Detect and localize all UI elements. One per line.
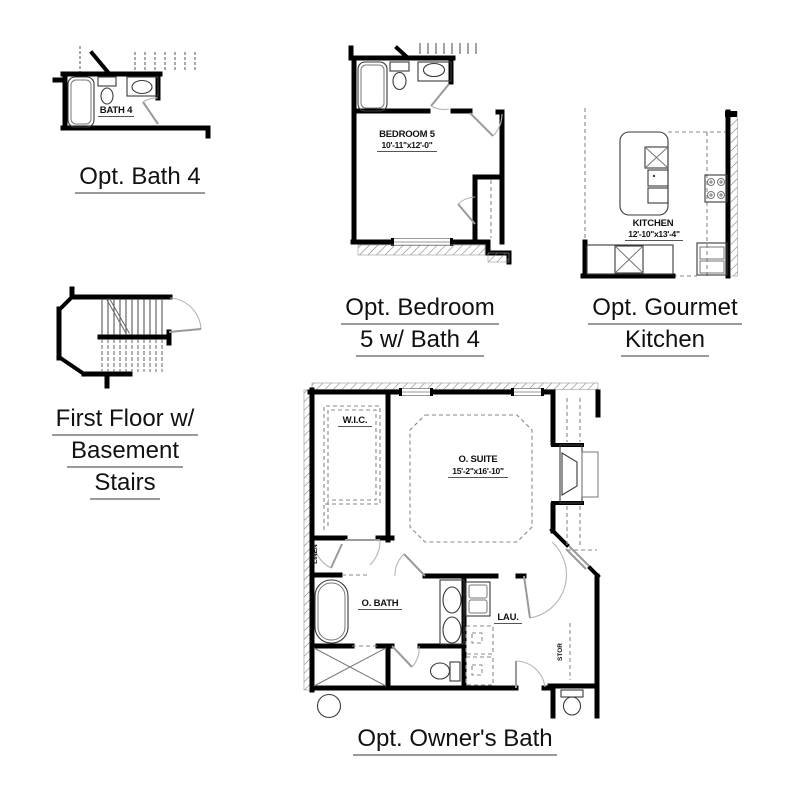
wic-label: W.I.C.	[343, 415, 368, 426]
storage-label: STOR	[557, 643, 564, 661]
washer-dryer	[466, 626, 493, 685]
exterior-hatch	[731, 112, 738, 276]
stairs-drawing	[50, 285, 205, 390]
bath4-drawing: BATH 4	[45, 40, 220, 145]
tray-ceiling	[410, 415, 532, 542]
bedroom5-room-dims: 10'-11"x12'-0"	[382, 140, 433, 150]
title-basement-stairs: First Floor w/ Basement Stairs	[35, 404, 215, 500]
title-text: Opt. Owner's Bath	[353, 724, 556, 756]
stair-ticks	[420, 43, 476, 54]
owners-bath-drawing: W.I.C. O. SUITE 15'-2"x16'-10" LINEN O. …	[300, 380, 605, 720]
title-text-line3: Stairs	[90, 468, 159, 500]
base-counter	[587, 245, 673, 274]
window-2	[511, 388, 544, 396]
toilet	[390, 62, 409, 90]
walls	[351, 48, 509, 262]
wic-door	[345, 540, 380, 565]
kitchen-room-dims: 12'-10"x13'-4"	[628, 229, 680, 239]
fireplace	[560, 445, 598, 503]
island	[620, 132, 668, 215]
floorplan-sheet: BATH 4 Opt. Bath 4	[0, 0, 800, 800]
laundry-sink	[466, 582, 490, 616]
title-opt-owners-bath: Opt. Owner's Bath	[330, 724, 580, 756]
bath-door	[431, 84, 449, 109]
stair-treads-upper	[102, 298, 162, 335]
title-text-line2: 5 w/ Bath 4	[356, 325, 484, 357]
bathtub	[315, 580, 348, 643]
title-opt-gourmet-kitchen: Opt. Gourmet Kitchen	[575, 293, 755, 357]
suite-entry-door	[524, 542, 589, 618]
laundry-label: LAU.	[497, 612, 518, 623]
title-text-line2: Basement	[67, 436, 183, 468]
wall-cap	[725, 111, 737, 117]
title-text-line1: Opt. Gourmet	[588, 293, 741, 325]
shower	[314, 646, 386, 686]
window	[399, 388, 433, 396]
stair-stringer	[92, 53, 107, 71]
toilet	[98, 77, 116, 104]
bathtub	[358, 62, 387, 111]
title-text: Opt. Bath 4	[75, 162, 204, 194]
bedroom5-room-label: BEDROOM 5	[379, 129, 436, 140]
angled-walls	[59, 296, 84, 374]
obath-label: O. BATH	[362, 598, 399, 609]
walls	[310, 390, 598, 716]
hall-toilet	[561, 690, 583, 715]
walls	[59, 289, 170, 386]
vanity-double-sinks	[440, 580, 464, 644]
bath-door	[395, 554, 425, 576]
wc-toilet	[431, 662, 461, 681]
suite-dims: 15'-2"x16'-10"	[452, 466, 504, 476]
walls	[583, 112, 728, 276]
bath4-room-label: BATH 4	[100, 105, 133, 116]
angled-walls	[552, 445, 598, 576]
wc-door	[392, 646, 419, 667]
bathtub	[68, 77, 94, 127]
title-text-line1: Opt. Bedroom	[341, 293, 498, 325]
kitchen-drawing: KITCHEN 12'-10"x13'-4"	[578, 100, 743, 285]
bedroom5-drawing: BEDROOM 5 10'-11"x12'-0"	[345, 40, 513, 275]
stair-treads-lower	[102, 339, 162, 372]
sink	[127, 77, 158, 96]
linen-door	[316, 544, 342, 568]
bedroom-door	[470, 113, 502, 136]
suite-label: O. SUITE	[458, 454, 497, 465]
plan-opt-gourmet-kitchen: KITCHEN 12'-10"x13'-4"	[578, 100, 743, 285]
kitchen-room-label: KITCHEN	[633, 218, 674, 229]
floor-circle	[318, 695, 341, 718]
door	[169, 298, 201, 332]
title-text-line1: First Floor w/	[52, 404, 199, 436]
title-opt-bath-4: Opt. Bath 4	[50, 162, 230, 194]
laundry-door	[516, 661, 545, 688]
plan-opt-owners-bath: W.I.C. O. SUITE 15'-2"x16'-10" LINEN O. …	[300, 380, 605, 720]
cooktop	[705, 175, 727, 202]
plan-opt-bedroom5: BEDROOM 5 10'-11"x12'-0"	[345, 40, 513, 275]
plan-opt-bath-4: BATH 4	[45, 40, 220, 145]
door	[143, 98, 158, 124]
wall-oven	[697, 243, 727, 275]
sink	[418, 62, 451, 81]
linen-label: LINEN	[312, 544, 319, 564]
title-opt-bedroom5: Opt. Bedroom 5 w/ Bath 4	[330, 293, 510, 357]
plan-basement-stairs	[50, 285, 205, 390]
title-text-line2: Kitchen	[621, 325, 709, 357]
